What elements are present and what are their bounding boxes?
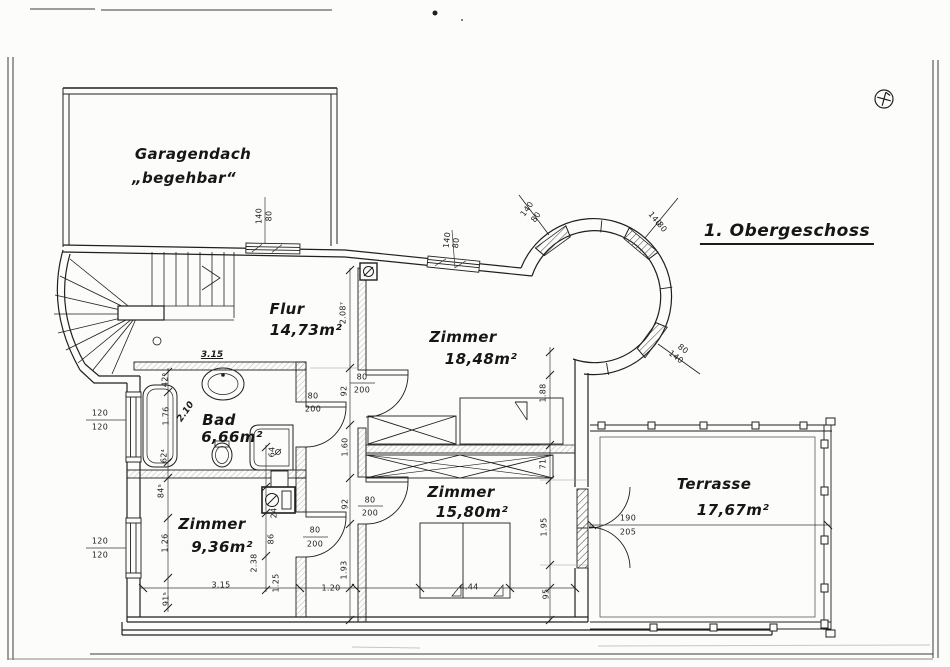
wardrobe-zimmer-1848 [368,416,456,444]
door-zimmer-1848 [366,370,408,417]
window-zimmer-936 [126,518,141,578]
windows [126,243,480,578]
terrace [590,418,835,637]
stair-direction-arrow [202,266,220,290]
door-terrasse [577,487,630,568]
bed-zimmer-1580 [420,523,510,598]
window-garage [246,243,300,254]
interior-walls [127,268,575,622]
terrace-railing-posts [598,418,835,637]
shower-icon [250,425,293,470]
window-flur [427,256,480,272]
door-zimmer-936 [306,512,346,557]
plan-marker-icon [875,90,893,108]
tower-windows [535,226,667,358]
terrace-floor [600,437,815,617]
chimney-icon [360,263,377,280]
doors [306,370,630,568]
floor-plan-drawing [0,0,950,667]
tower-bay [519,195,700,375]
furniture [366,398,563,598]
floor-plan-page: Garagendach„begehbar“1. ObergeschossFlur… [0,0,950,667]
bathtub-icon [143,385,177,467]
door-bad [306,402,346,447]
garage-roof-outline [63,88,337,247]
window-leader-lines [519,195,700,374]
window-bad [126,392,141,462]
page-border [8,9,938,660]
door-zimmer-1580 [366,477,408,524]
sink-icon [202,368,244,400]
stair-landing [118,306,164,320]
toilet-icon [212,441,232,467]
wardrobe-zimmer-1580 [366,455,553,478]
stair-post [153,337,161,345]
exterior-walls [57,245,772,635]
bath-fixtures [143,368,293,470]
bed-zimmer-1848 [460,398,563,444]
